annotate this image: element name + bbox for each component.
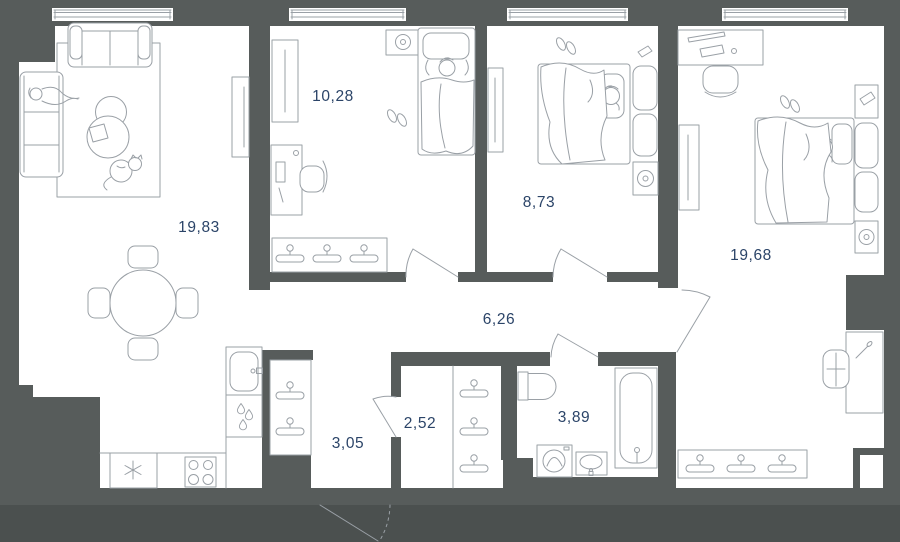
blanket [757, 117, 831, 223]
sofa [68, 23, 152, 67]
wall-closet-left-upper [391, 366, 401, 397]
wall-bedroom2-bedroom3 [658, 26, 678, 288]
wardrobe [272, 238, 387, 272]
bed-child [418, 28, 475, 155]
mirror-cabinet [679, 125, 699, 210]
mirror-cabinet [272, 40, 298, 122]
desk [271, 145, 302, 215]
wall-closet-left-lower [391, 437, 401, 488]
wall-shaft-left [853, 455, 860, 488]
speaker [633, 162, 658, 195]
desk-chair [703, 66, 738, 97]
area-label-bathroom: 3,89 [558, 409, 591, 426]
area-label-closet: 2,52 [404, 415, 437, 432]
bed-person [755, 117, 854, 224]
floor-plan-page: 19,83 10,28 8,73 19,68 6,26 3,05 2,52 3,… [0, 0, 900, 542]
armchair [823, 350, 849, 388]
bed-person [538, 63, 630, 164]
slipper-shelf [855, 85, 878, 118]
nightstand [633, 114, 657, 156]
wardrobe [678, 450, 807, 478]
wall-bottom-left [0, 488, 320, 505]
wall-hall-top-right [607, 272, 658, 282]
wall-bathroom-right [658, 352, 676, 505]
speaker [855, 221, 878, 253]
lower-background-band [0, 505, 900, 542]
chaise-sofa [20, 72, 63, 177]
wall-bedroom1-bedroom2 [475, 26, 487, 282]
wall-bathroom-block [503, 458, 533, 488]
wall-hall-top-mid [458, 272, 553, 282]
mirror-cabinet [488, 68, 503, 152]
wall-corridor-block [270, 455, 311, 488]
wall-living-bedroom [249, 26, 270, 290]
area-label-hallway: 6,26 [483, 311, 516, 328]
area-label-bedroom-middle: 8,73 [523, 194, 556, 211]
window-bedroom-middle [507, 8, 628, 21]
wall-bathroom-bottom [533, 477, 658, 488]
window-bedroom-large [722, 8, 848, 21]
area-label-corridor: 3,05 [332, 435, 365, 452]
nightstand-speaker [386, 30, 421, 55]
wall-hall-top-left [270, 272, 406, 282]
corridor-wardrobe [270, 360, 311, 455]
blanket [421, 78, 474, 154]
bathroom-sink [576, 452, 607, 476]
wall-corner-block [0, 7, 55, 62]
wall-bathroom-top [598, 352, 658, 366]
window-living [52, 8, 173, 21]
wall-corridor-wardrobe-top [266, 350, 313, 360]
side-desk [846, 332, 883, 413]
nightstand [855, 172, 878, 212]
wall-closet-bathroom [501, 366, 517, 460]
area-label-living-room: 19,83 [178, 219, 220, 236]
wall-shaft-top [853, 448, 900, 455]
washing-machine [537, 445, 572, 477]
wall-pillar-right [846, 275, 900, 330]
utility-shaft [860, 455, 883, 488]
area-label-bedroom-large: 19,68 [730, 247, 772, 264]
window-bedroom-small [289, 8, 406, 21]
desk [678, 30, 763, 65]
nightstand [633, 66, 657, 110]
wall-closet-top [391, 352, 550, 366]
bathtub [615, 368, 657, 468]
nightstand [855, 123, 878, 168]
wall-kitchen-corridor [262, 350, 270, 488]
area-label-bedroom-small: 10,28 [312, 88, 354, 105]
wall-bottom-right [390, 488, 900, 505]
tv-panel [232, 77, 249, 157]
floor-plan: 19,83 10,28 8,73 19,68 6,26 3,05 2,52 3,… [0, 0, 900, 542]
